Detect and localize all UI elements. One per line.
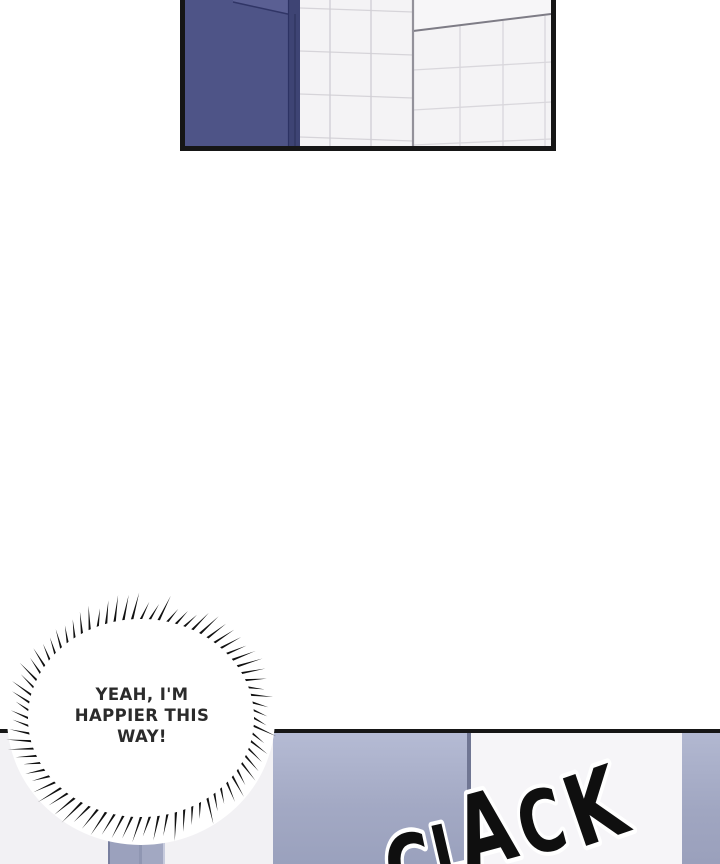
speech-text: YEAH, I'M HAPPIER THIS WAY!: [50, 684, 234, 747]
speech-line: HAPPIER THIS: [50, 705, 234, 726]
burst-speech-bubble: YEAH, I'M HAPPIER THIS WAY!: [0, 572, 300, 864]
blue-door: [185, 0, 300, 146]
sfx-clack: C L A C K: [375, 740, 715, 864]
panel-bathroom-corner: [180, 0, 556, 151]
bathroom-corner-art: [185, 0, 551, 146]
comic-page: C L A C K YEAH, I'M HAPPIER THIS WAY!: [0, 0, 720, 864]
speech-line: WAY!: [50, 726, 234, 747]
speech-line: YEAH, I'M: [50, 684, 234, 705]
